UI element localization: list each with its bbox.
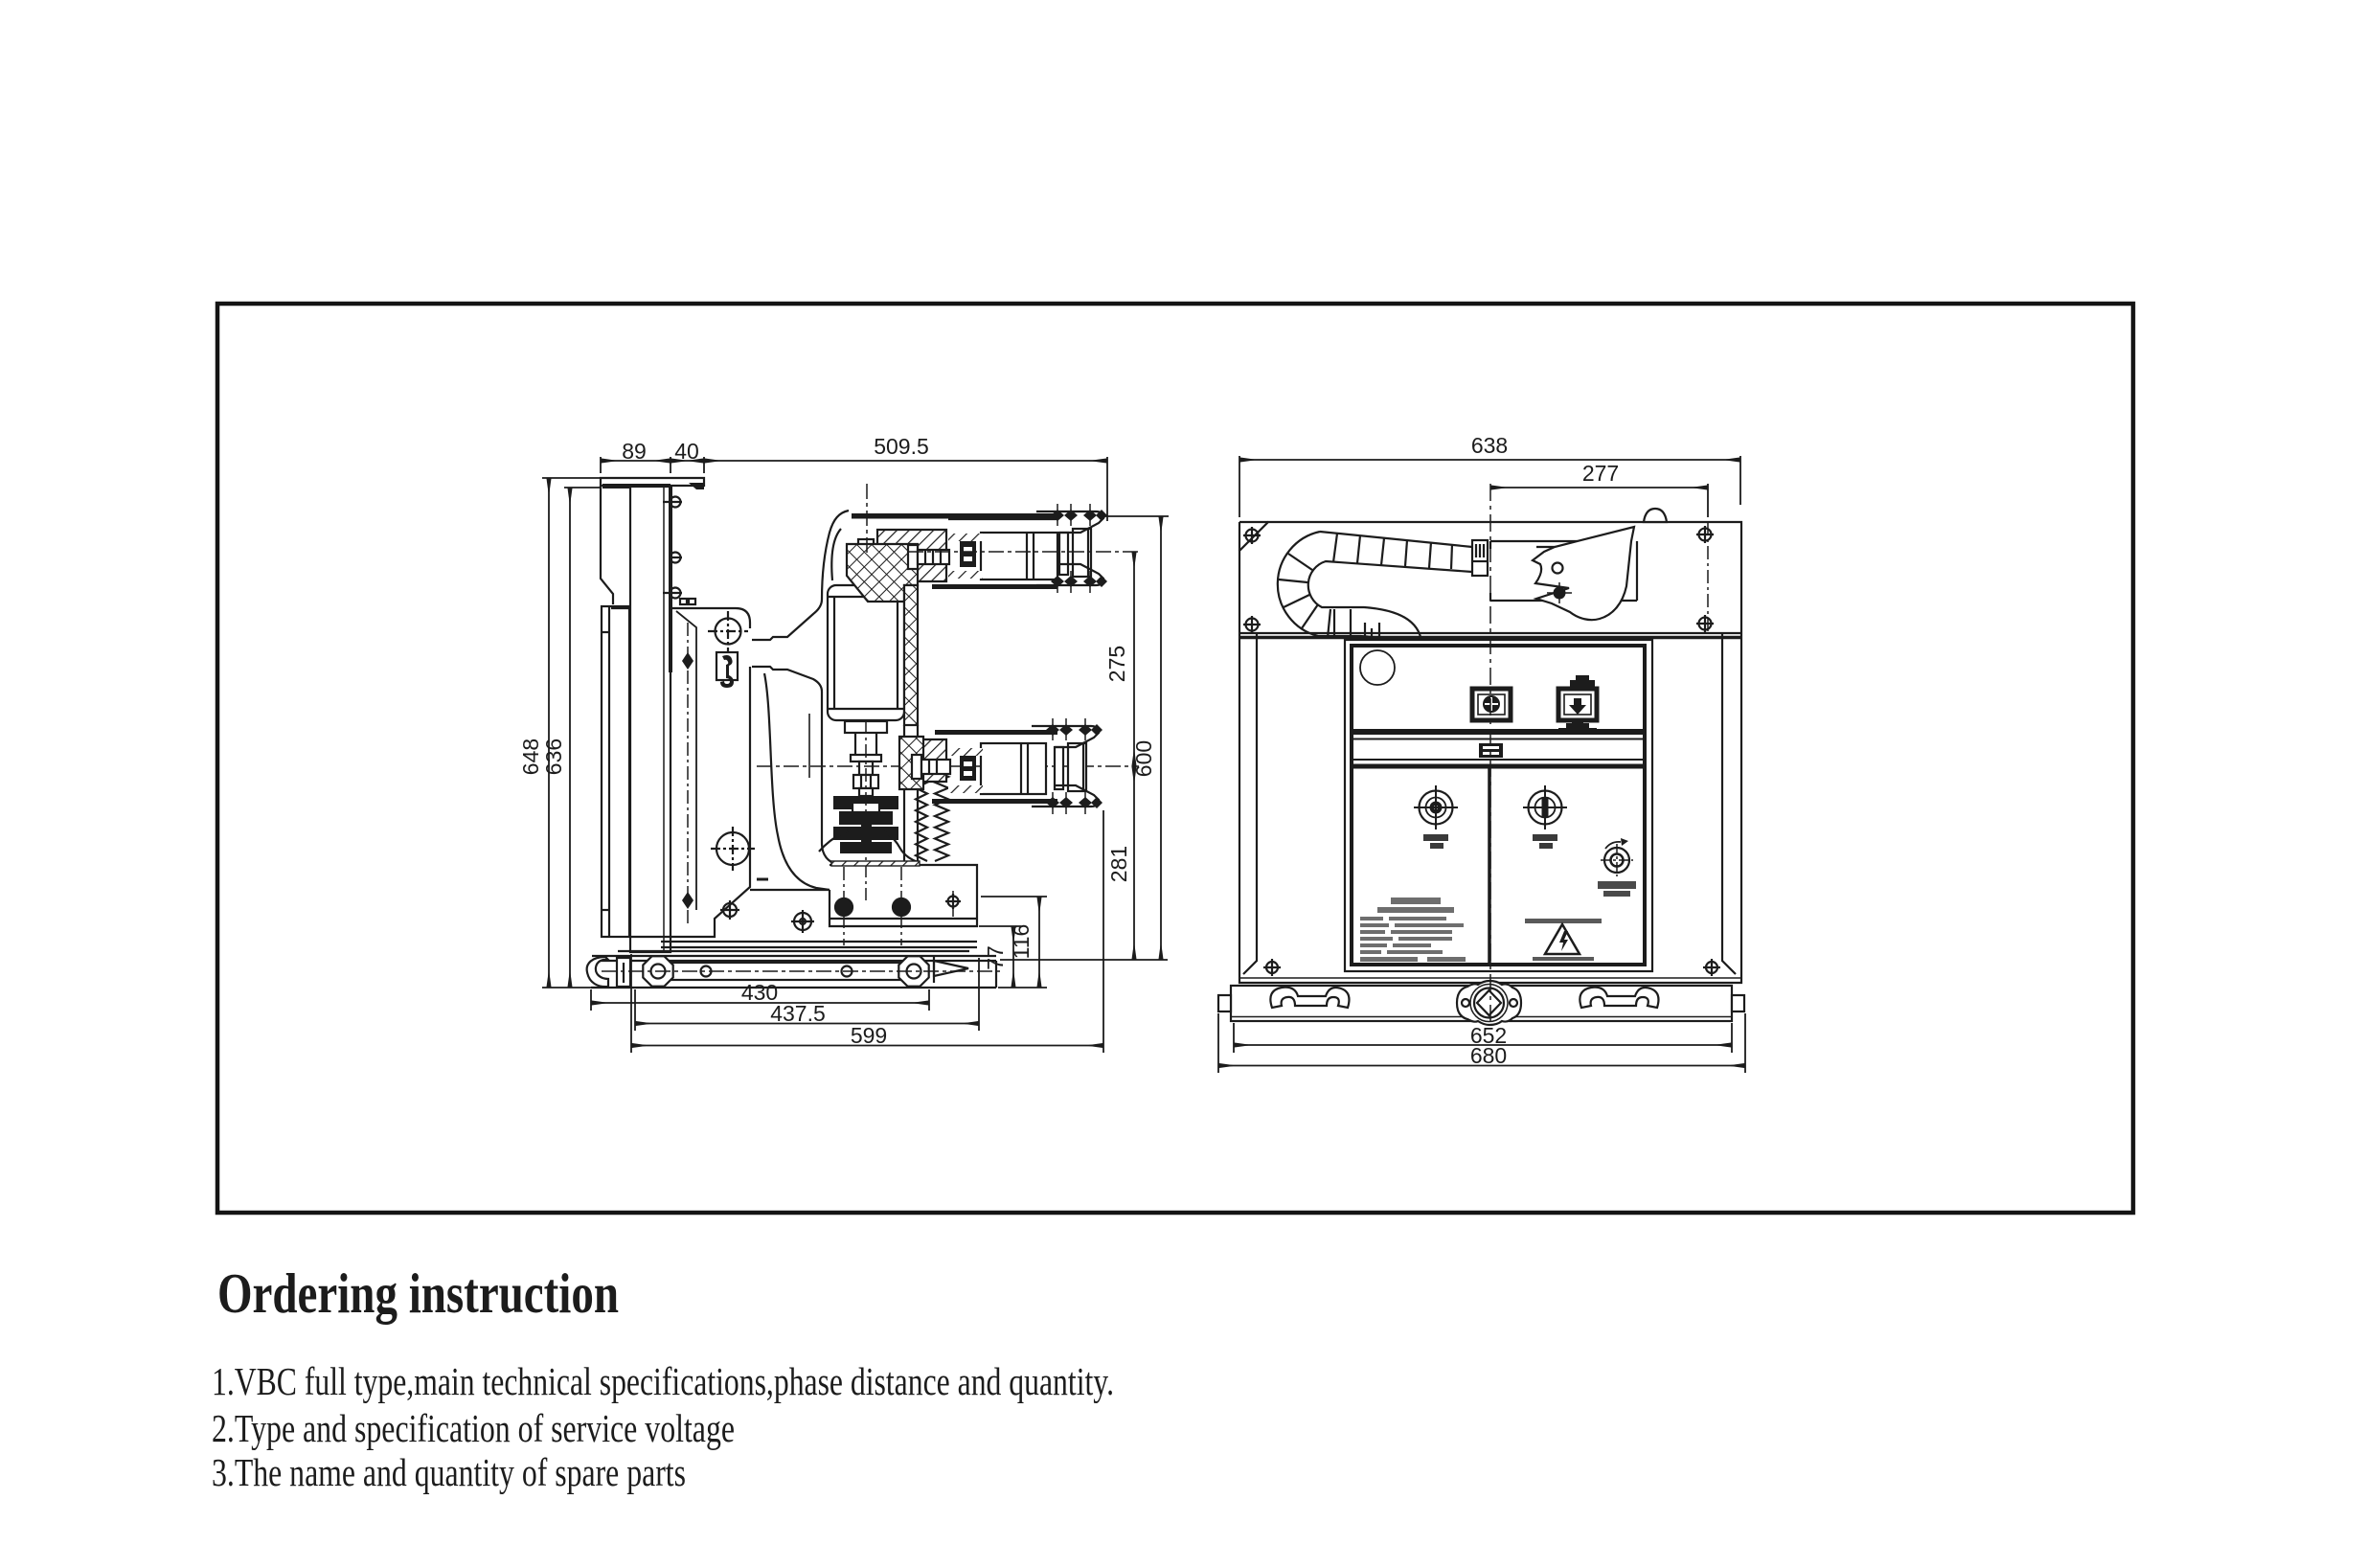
svg-text:3.The name and quantity of spa: 3.The name and quantity of spare parts <box>212 1450 686 1494</box>
svg-text:275: 275 <box>1104 646 1129 682</box>
svg-text:2.Type and specification of se: 2.Type and specification of service volt… <box>212 1406 735 1450</box>
svg-text:599: 599 <box>851 1023 887 1048</box>
svg-text:281: 281 <box>1106 846 1131 882</box>
svg-text:648: 648 <box>518 739 543 775</box>
svg-text:Ordering instruction: Ordering instruction <box>217 1261 619 1325</box>
svg-text:116: 116 <box>1009 924 1034 960</box>
svg-text:89: 89 <box>622 439 647 464</box>
svg-text:509.5: 509.5 <box>874 434 929 459</box>
svg-text:277: 277 <box>1582 461 1619 486</box>
svg-text:437.5: 437.5 <box>770 1001 826 1026</box>
svg-text:638: 638 <box>1471 433 1508 458</box>
svg-text:600: 600 <box>1131 740 1156 777</box>
svg-text:1.VBC full type,main technical: 1.VBC full type,main technical specifica… <box>212 1359 1114 1403</box>
svg-text:77: 77 <box>983 945 1008 970</box>
svg-text:40: 40 <box>674 439 699 464</box>
svg-text:680: 680 <box>1470 1043 1507 1068</box>
svg-text:636: 636 <box>541 739 566 775</box>
